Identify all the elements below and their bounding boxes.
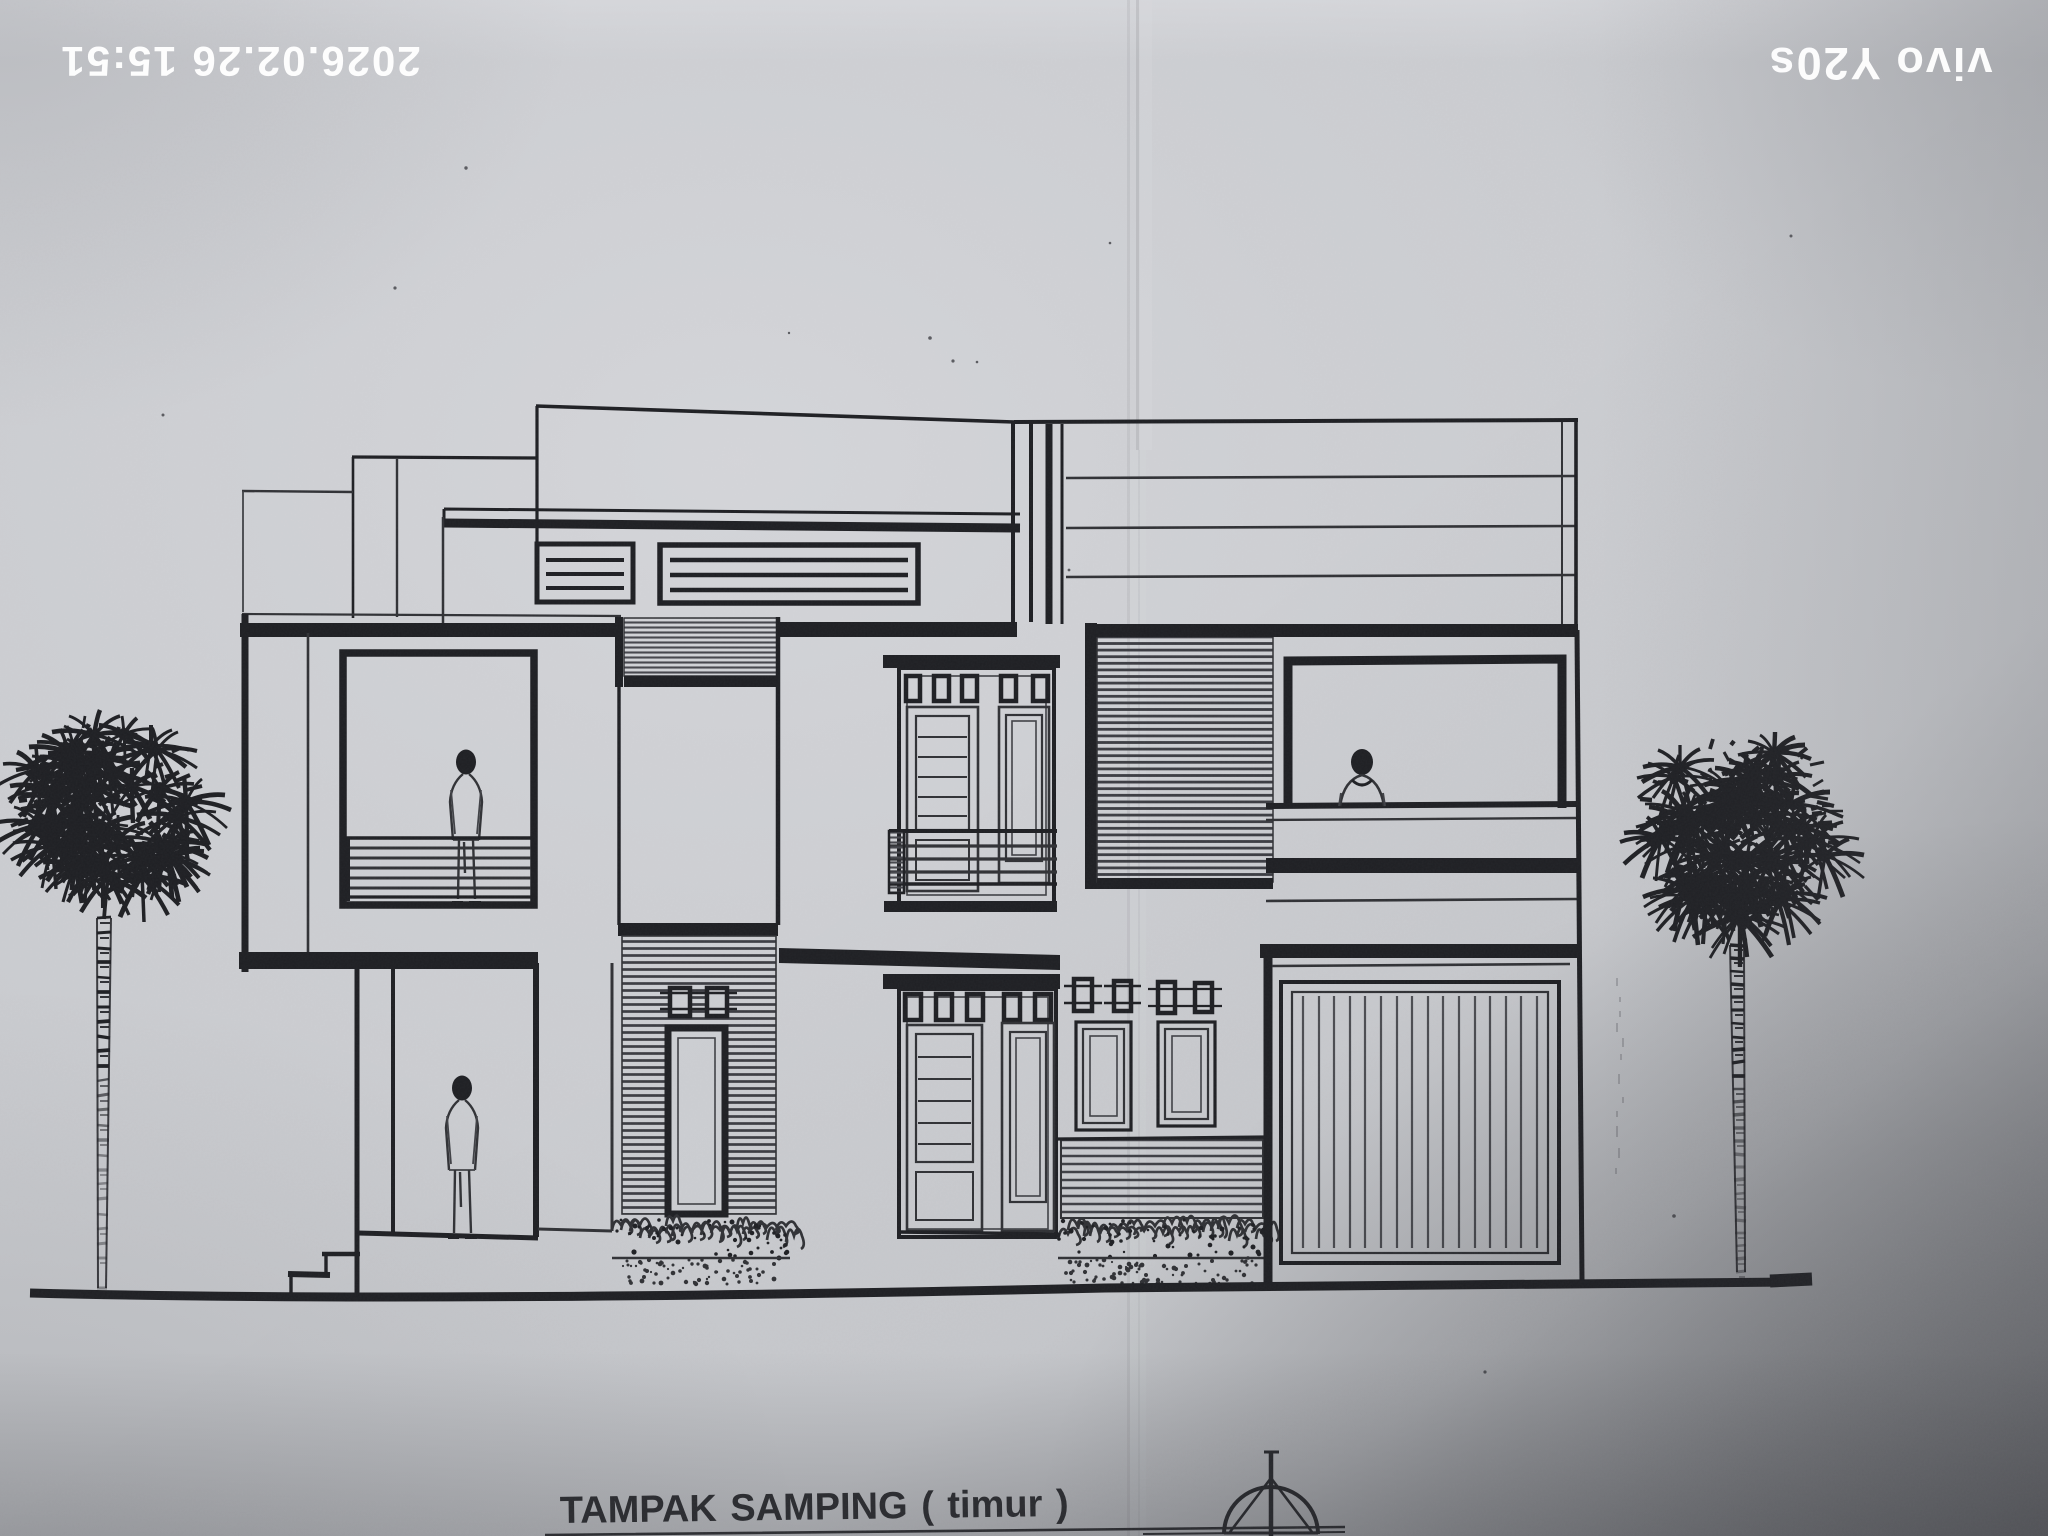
svg-text:2026.02.26 15:51: 2026.02.26 15:51 [59,38,420,85]
svg-text:vivo Y20s: vivo Y20s [1768,38,1993,89]
